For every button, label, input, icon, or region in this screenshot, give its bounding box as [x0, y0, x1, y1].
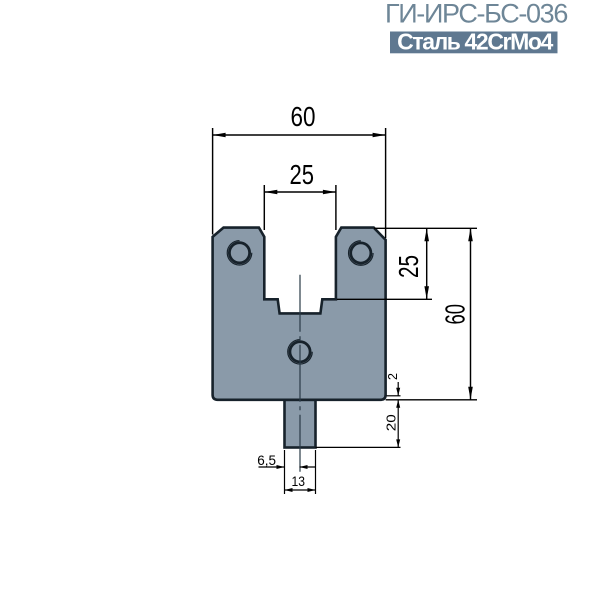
svg-text:25: 25 [289, 159, 314, 190]
svg-text:60: 60 [440, 304, 471, 325]
svg-text:2: 2 [386, 373, 400, 380]
svg-text:20: 20 [383, 414, 398, 431]
svg-text:13: 13 [292, 474, 306, 489]
svg-text:6,5: 6,5 [257, 453, 276, 468]
svg-text:Сталь 42CrMo4: Сталь 42CrMo4 [397, 29, 553, 55]
svg-text:60: 60 [291, 101, 316, 132]
svg-text:ГИ-ИРС-БС-036: ГИ-ИРС-БС-036 [385, 0, 567, 29]
svg-text:25: 25 [393, 255, 424, 278]
